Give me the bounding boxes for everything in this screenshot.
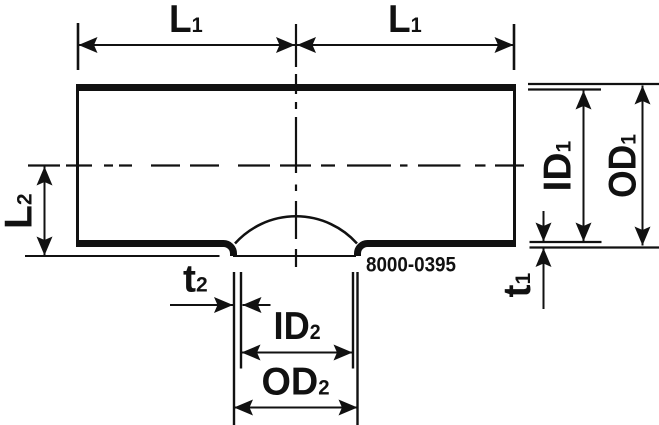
svg-text:t2: t2 [183,258,208,301]
svg-text:ID2: ID2 [274,304,321,347]
svg-text:ID1: ID1 [537,141,580,192]
svg-text:OD1: OD1 [600,134,644,198]
svg-text:L1: L1 [169,0,203,41]
svg-text:L2: L2 [0,193,41,229]
svg-text:8000-0395: 8000-0395 [366,252,456,276]
svg-text:t1: t1 [496,273,539,298]
svg-text:OD2: OD2 [262,360,330,404]
svg-text:L1: L1 [388,0,422,41]
